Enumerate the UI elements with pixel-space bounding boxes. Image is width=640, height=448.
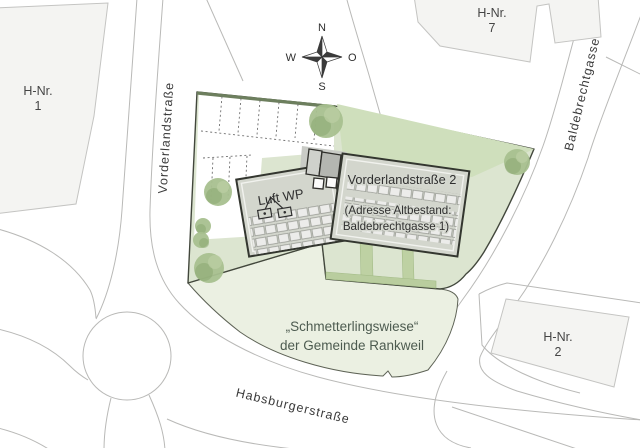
- main-building-subtitle-1: (Adresse Altbestand:: [345, 204, 452, 217]
- main-building-title: Vorderlandstraße 2: [348, 172, 457, 187]
- hnr2-label-line1: H-Nr.: [543, 330, 572, 344]
- compass-east-label: O: [348, 52, 357, 64]
- tree: [504, 149, 530, 175]
- shrub: [193, 232, 209, 248]
- shrub: [195, 218, 211, 234]
- hnr7-label-line1: H-Nr.: [477, 6, 506, 20]
- tree: [309, 104, 343, 138]
- meadow-label-line2: der Gemeinde Rankweil: [280, 338, 424, 353]
- compass-west-label: W: [286, 52, 297, 64]
- garage-small-box-1: [313, 178, 324, 189]
- main-building-subtitle-2: Baldebrechtgasse 1): [343, 220, 449, 233]
- hnr7-label-line2: 7: [489, 21, 496, 35]
- meadow-label-line1: „Schmetterlingswiese“: [286, 319, 419, 334]
- tree: [204, 178, 232, 206]
- hnr1-label-line2: 1: [35, 99, 42, 113]
- roundabout: [83, 312, 171, 400]
- site-plan-stage: Luft WP Vorderlandstraße 2 (Adresse Altb…: [0, 0, 640, 448]
- compass-north-label: N: [318, 22, 326, 34]
- garden-strip-vertical-2: [402, 246, 414, 281]
- hnr1-label-line1: H-Nr.: [23, 84, 52, 98]
- garage-small-box-2: [326, 177, 337, 188]
- site-plan-svg: Luft WP Vorderlandstraße 2 (Adresse Altb…: [0, 0, 640, 448]
- compass-south-label: S: [318, 81, 325, 93]
- hnr2-label-line2: 2: [555, 345, 562, 359]
- garage-dark-structure: [319, 152, 341, 179]
- tree: [194, 253, 224, 283]
